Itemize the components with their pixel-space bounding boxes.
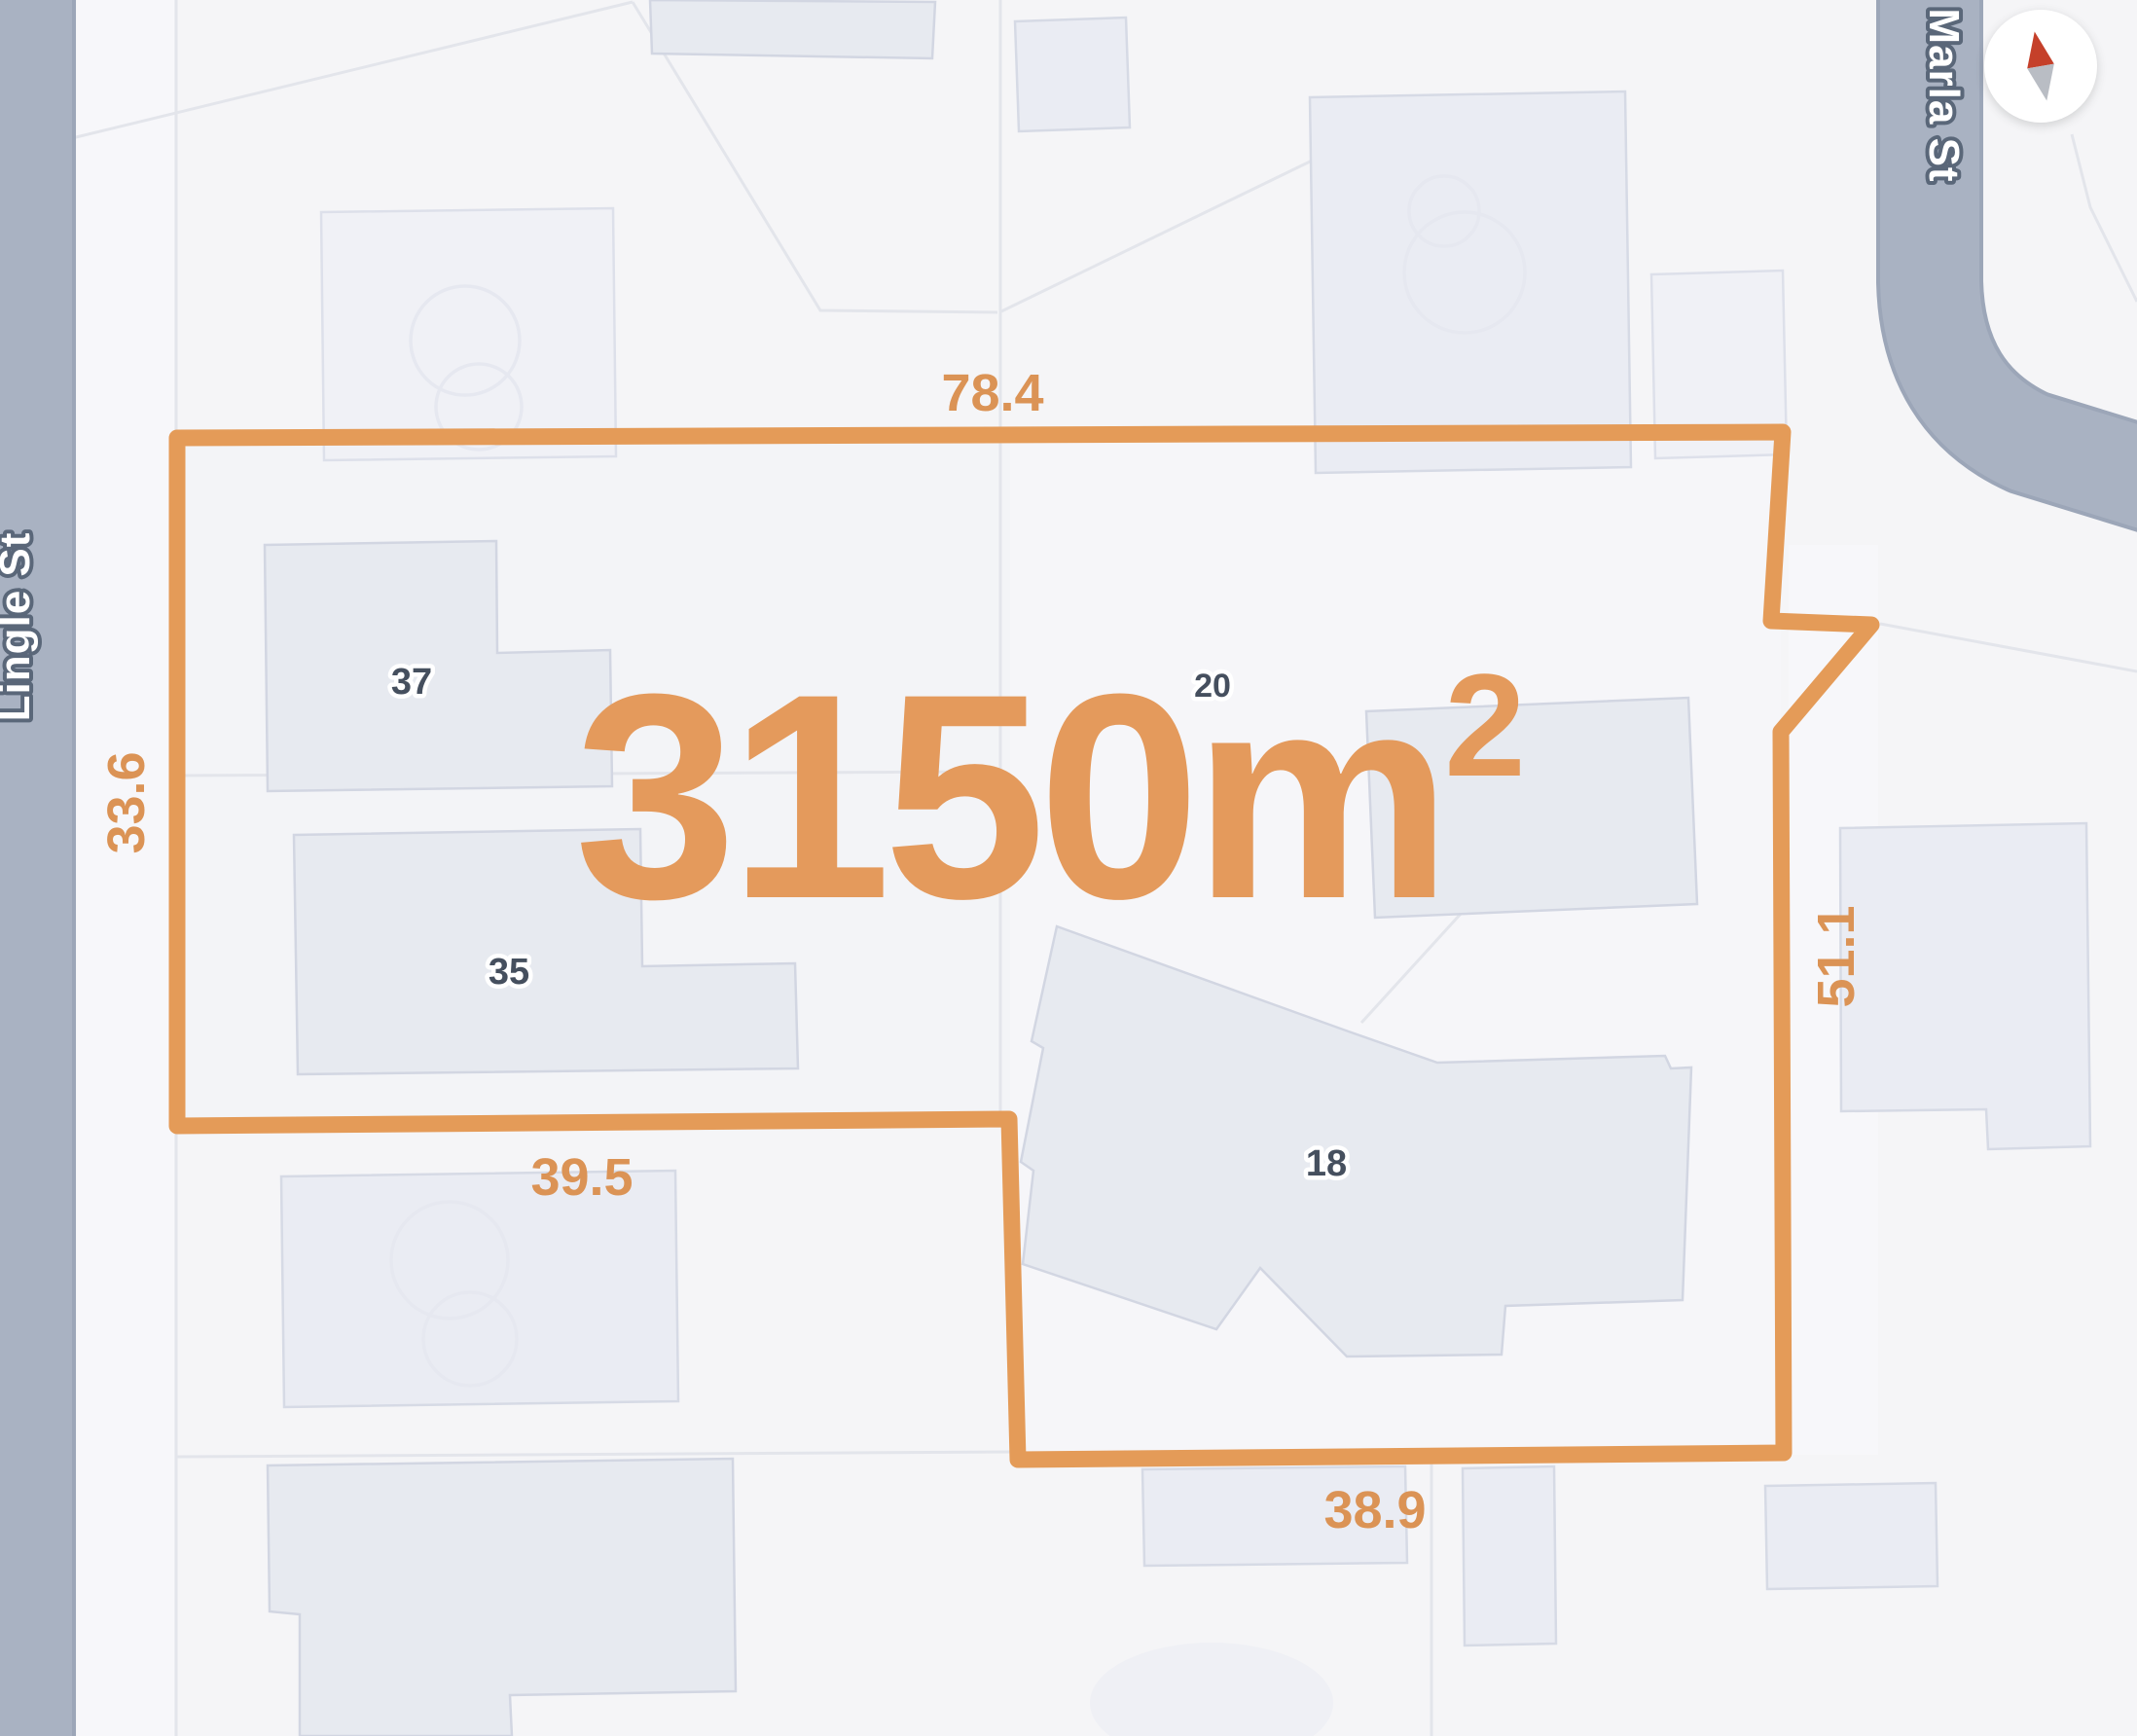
building-footprint [1310, 91, 1631, 473]
building-footprint [650, 0, 935, 58]
parcel-area-label: 3150m2 [574, 633, 1520, 959]
street-label-lingle: Lingle St [0, 532, 39, 722]
measurement-left: 33.6 [97, 751, 156, 853]
parcel-area-superscript: 2 [1444, 643, 1520, 807]
building-footprint [321, 208, 616, 460]
measurement-bottom-left: 39.5 [530, 1148, 633, 1207]
compass-needle-icon [1984, 10, 2097, 123]
house-number-20: 20 [1194, 668, 1231, 705]
house-number-35: 35 [489, 952, 529, 993]
measurement-right: 51.1 [1807, 905, 1865, 1007]
parcel-area-value: 3150m [574, 633, 1444, 959]
house-number-18: 18 [1306, 1143, 1347, 1184]
building-footprint [1015, 18, 1130, 131]
compass-button[interactable] [1984, 10, 2097, 123]
measurement-top: 78.4 [941, 364, 1043, 422]
compass-south-needle [2027, 64, 2060, 103]
compass-north-needle [2021, 29, 2054, 68]
measurement-bottom: 38.9 [1323, 1481, 1426, 1539]
building-footprint [1463, 1466, 1556, 1646]
house-number-37: 37 [391, 662, 432, 703]
building-footprint [1765, 1483, 1938, 1589]
map-canvas[interactable]: Lingle St Marla St 78.4 33.6 39.5 38.9 5… [0, 0, 2137, 1736]
street-label-marla: Marla St [1920, 8, 1968, 182]
building-footprint [1840, 823, 2090, 1149]
